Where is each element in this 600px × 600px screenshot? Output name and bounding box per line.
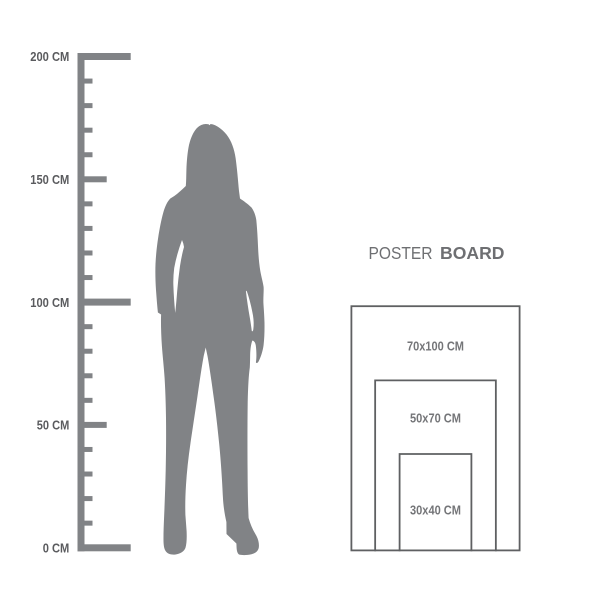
svg-text:70x100 CM: 70x100 CM xyxy=(407,339,464,354)
svg-text:POSTER: POSTER xyxy=(369,243,433,263)
svg-text:0 CM: 0 CM xyxy=(43,540,70,555)
svg-text:150 CM: 150 CM xyxy=(30,172,69,187)
svg-text:200 CM: 200 CM xyxy=(30,49,69,64)
svg-text:30x40 CM: 30x40 CM xyxy=(410,503,461,518)
svg-text:BOARD: BOARD xyxy=(440,243,505,263)
svg-text:50 CM: 50 CM xyxy=(37,418,70,433)
svg-text:100 CM: 100 CM xyxy=(30,295,69,310)
svg-text:50x70 CM: 50x70 CM xyxy=(410,410,461,425)
